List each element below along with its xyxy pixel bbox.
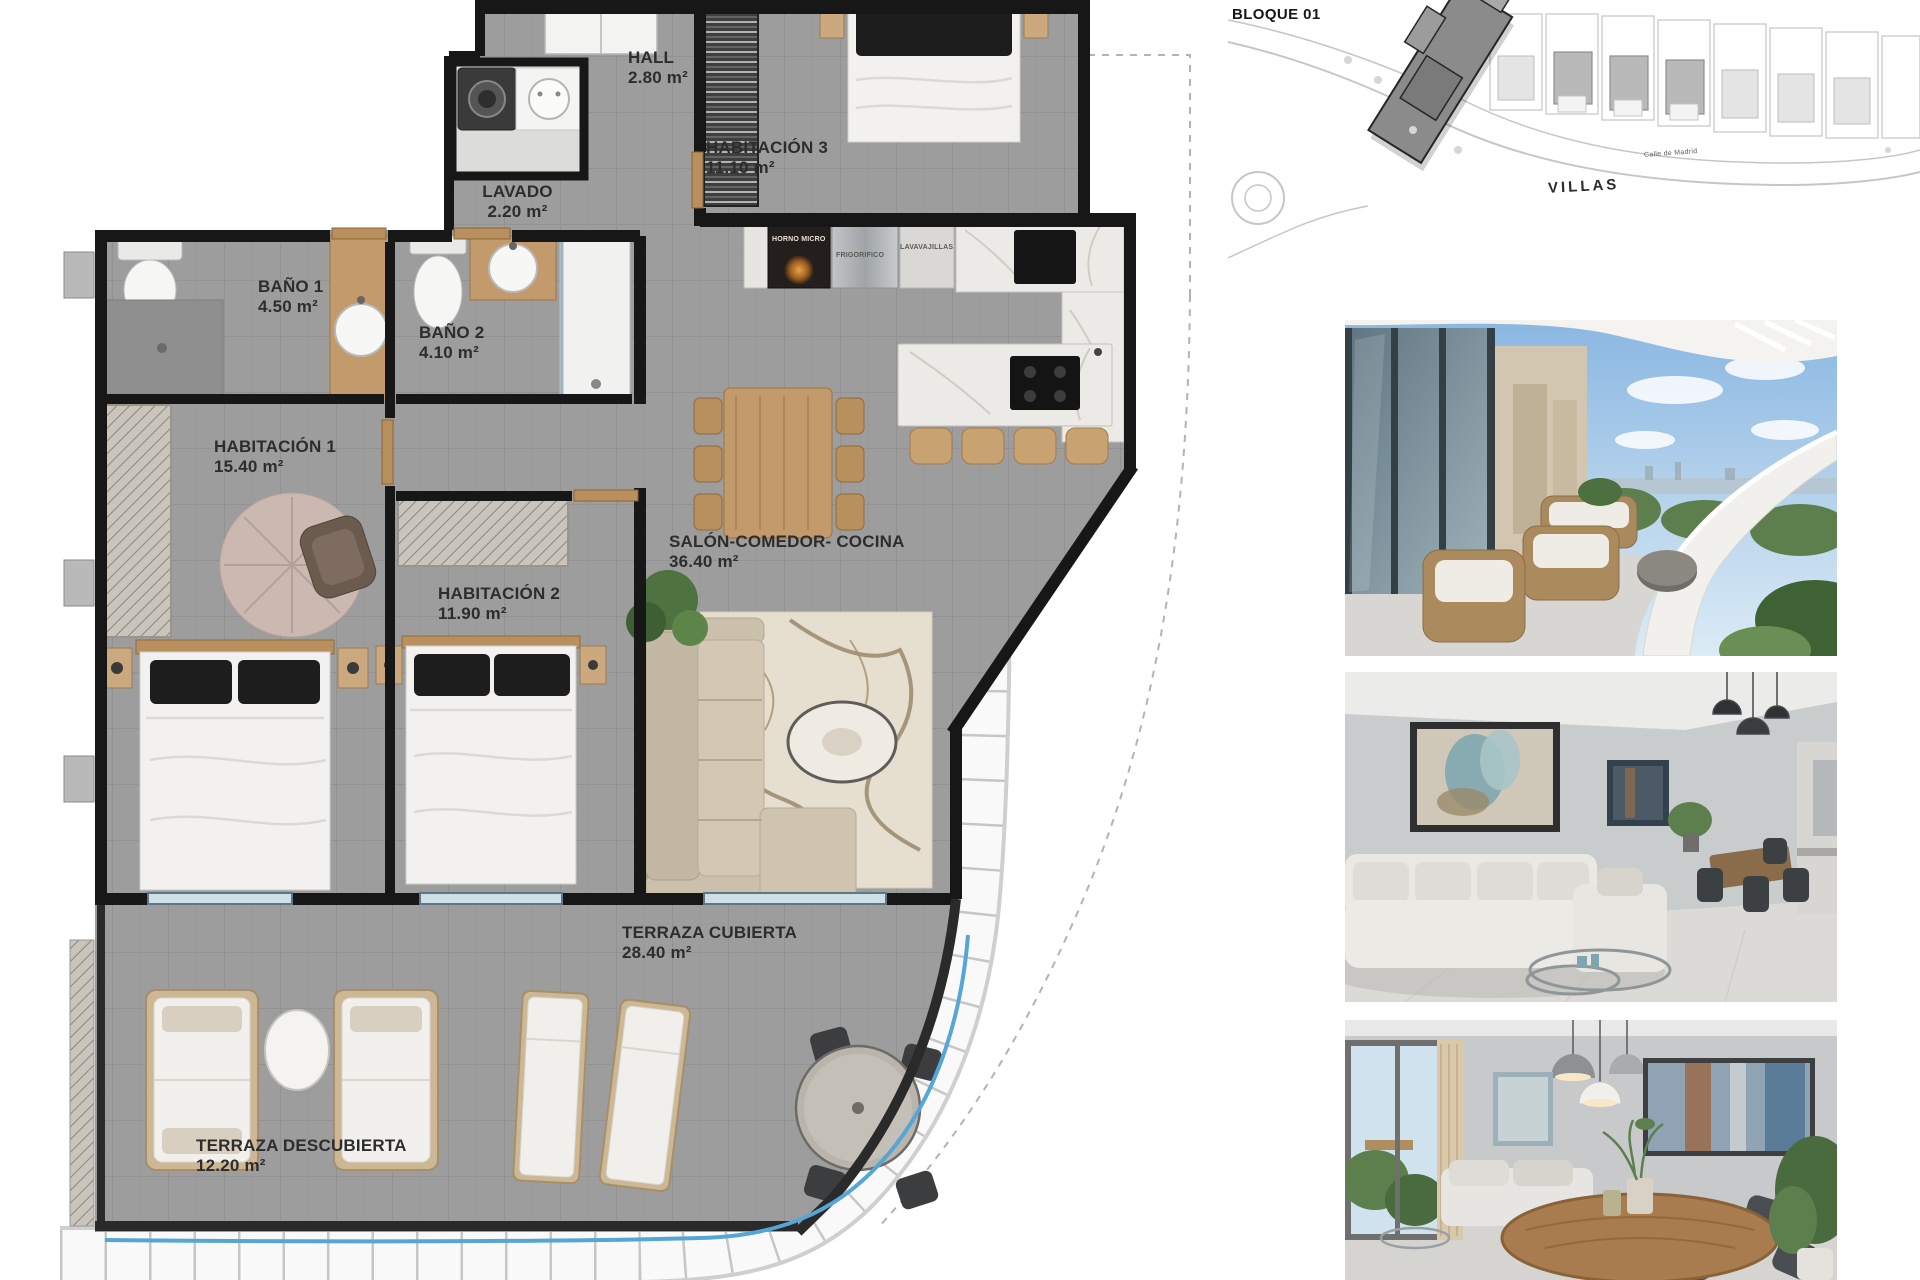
utility-boxes	[64, 252, 94, 1226]
room-area: 4.10 m²	[419, 343, 484, 363]
room-area: 2.20 m²	[450, 202, 585, 222]
sliding-doors	[148, 893, 886, 904]
site-map-drawing	[1228, 0, 1920, 258]
room-name: HABITACIÓN 2	[438, 584, 560, 603]
living-room-render-drawing	[1345, 672, 1837, 1002]
floor-plan-drawing	[0, 0, 1250, 1280]
room-name: LAVADO	[482, 182, 552, 201]
room-label-terraza-cubierta: TERRAZA CUBIERTA 28.40 m²	[622, 923, 797, 963]
appliance-label-lavavajillas: LAVAVAJILLAS	[900, 244, 952, 252]
appliance-label-horno: HORNO MICRO	[772, 236, 826, 244]
room-area: 2.80 m²	[628, 68, 688, 88]
room-name: HALL	[628, 48, 674, 67]
room-label-bano2: BAÑO 2 4.10 m²	[419, 323, 484, 363]
terrace-render-drawing	[1345, 320, 1837, 656]
room-area: 12.20 m²	[196, 1156, 407, 1176]
photo-living-room-render	[1345, 672, 1837, 1002]
room-area: 4.50 m²	[258, 297, 323, 317]
laundry-room	[452, 62, 584, 176]
room-label-bano1: BAÑO 1 4.50 m²	[258, 277, 323, 317]
bloque-01-label: BLOQUE 01	[1232, 6, 1321, 23]
wall-art	[1493, 1058, 1815, 1156]
room-label-hall: HALL 2.80 m²	[628, 48, 688, 88]
dining-table	[694, 388, 864, 538]
villa-plots	[1490, 14, 1920, 138]
room-label-habitacion3: HABITACIÓN 3 11.10 m²	[706, 138, 828, 178]
room-name: TERRAZA CUBIERTA	[622, 923, 797, 942]
room-name: BAÑO 1	[258, 277, 323, 296]
room-area: 11.10 m²	[706, 158, 828, 178]
room-area: 36.40 m²	[669, 552, 905, 572]
photo-terrace-render	[1345, 320, 1837, 656]
room-area: 15.40 m²	[214, 457, 336, 477]
room-name: TERRAZA DESCUBIERTA	[196, 1136, 407, 1155]
room-name: HABITACIÓN 3	[706, 138, 828, 157]
floorplan-page: BLOQUE 01 VILLAS Calle de Madrid HALL 2.…	[0, 0, 1920, 1280]
room-label-salon: SALÓN-COMEDOR- COCINA 36.40 m²	[669, 532, 905, 572]
room-label-lavado: LAVADO 2.20 m²	[450, 182, 585, 222]
photo-dining-room-render	[1345, 1020, 1837, 1280]
appliance-label-frigorifico: FRIGORIFICO	[836, 252, 896, 260]
room-name: SALÓN-COMEDOR- COCINA	[669, 532, 905, 551]
room-label-terraza-descubierta: TERRAZA DESCUBIERTA 12.20 m²	[196, 1136, 407, 1176]
room-area: 11.90 m²	[438, 604, 560, 624]
room-name: HABITACIÓN 1	[214, 437, 336, 456]
room-name: BAÑO 2	[419, 323, 484, 342]
room-label-habitacion2: HABITACIÓN 2 11.90 m²	[438, 584, 560, 624]
living-area	[626, 570, 932, 900]
room-label-habitacion1: HABITACIÓN 1 15.40 m²	[214, 437, 336, 477]
room-area: 28.40 m²	[622, 943, 797, 963]
dining-room-render-drawing	[1345, 1020, 1837, 1280]
